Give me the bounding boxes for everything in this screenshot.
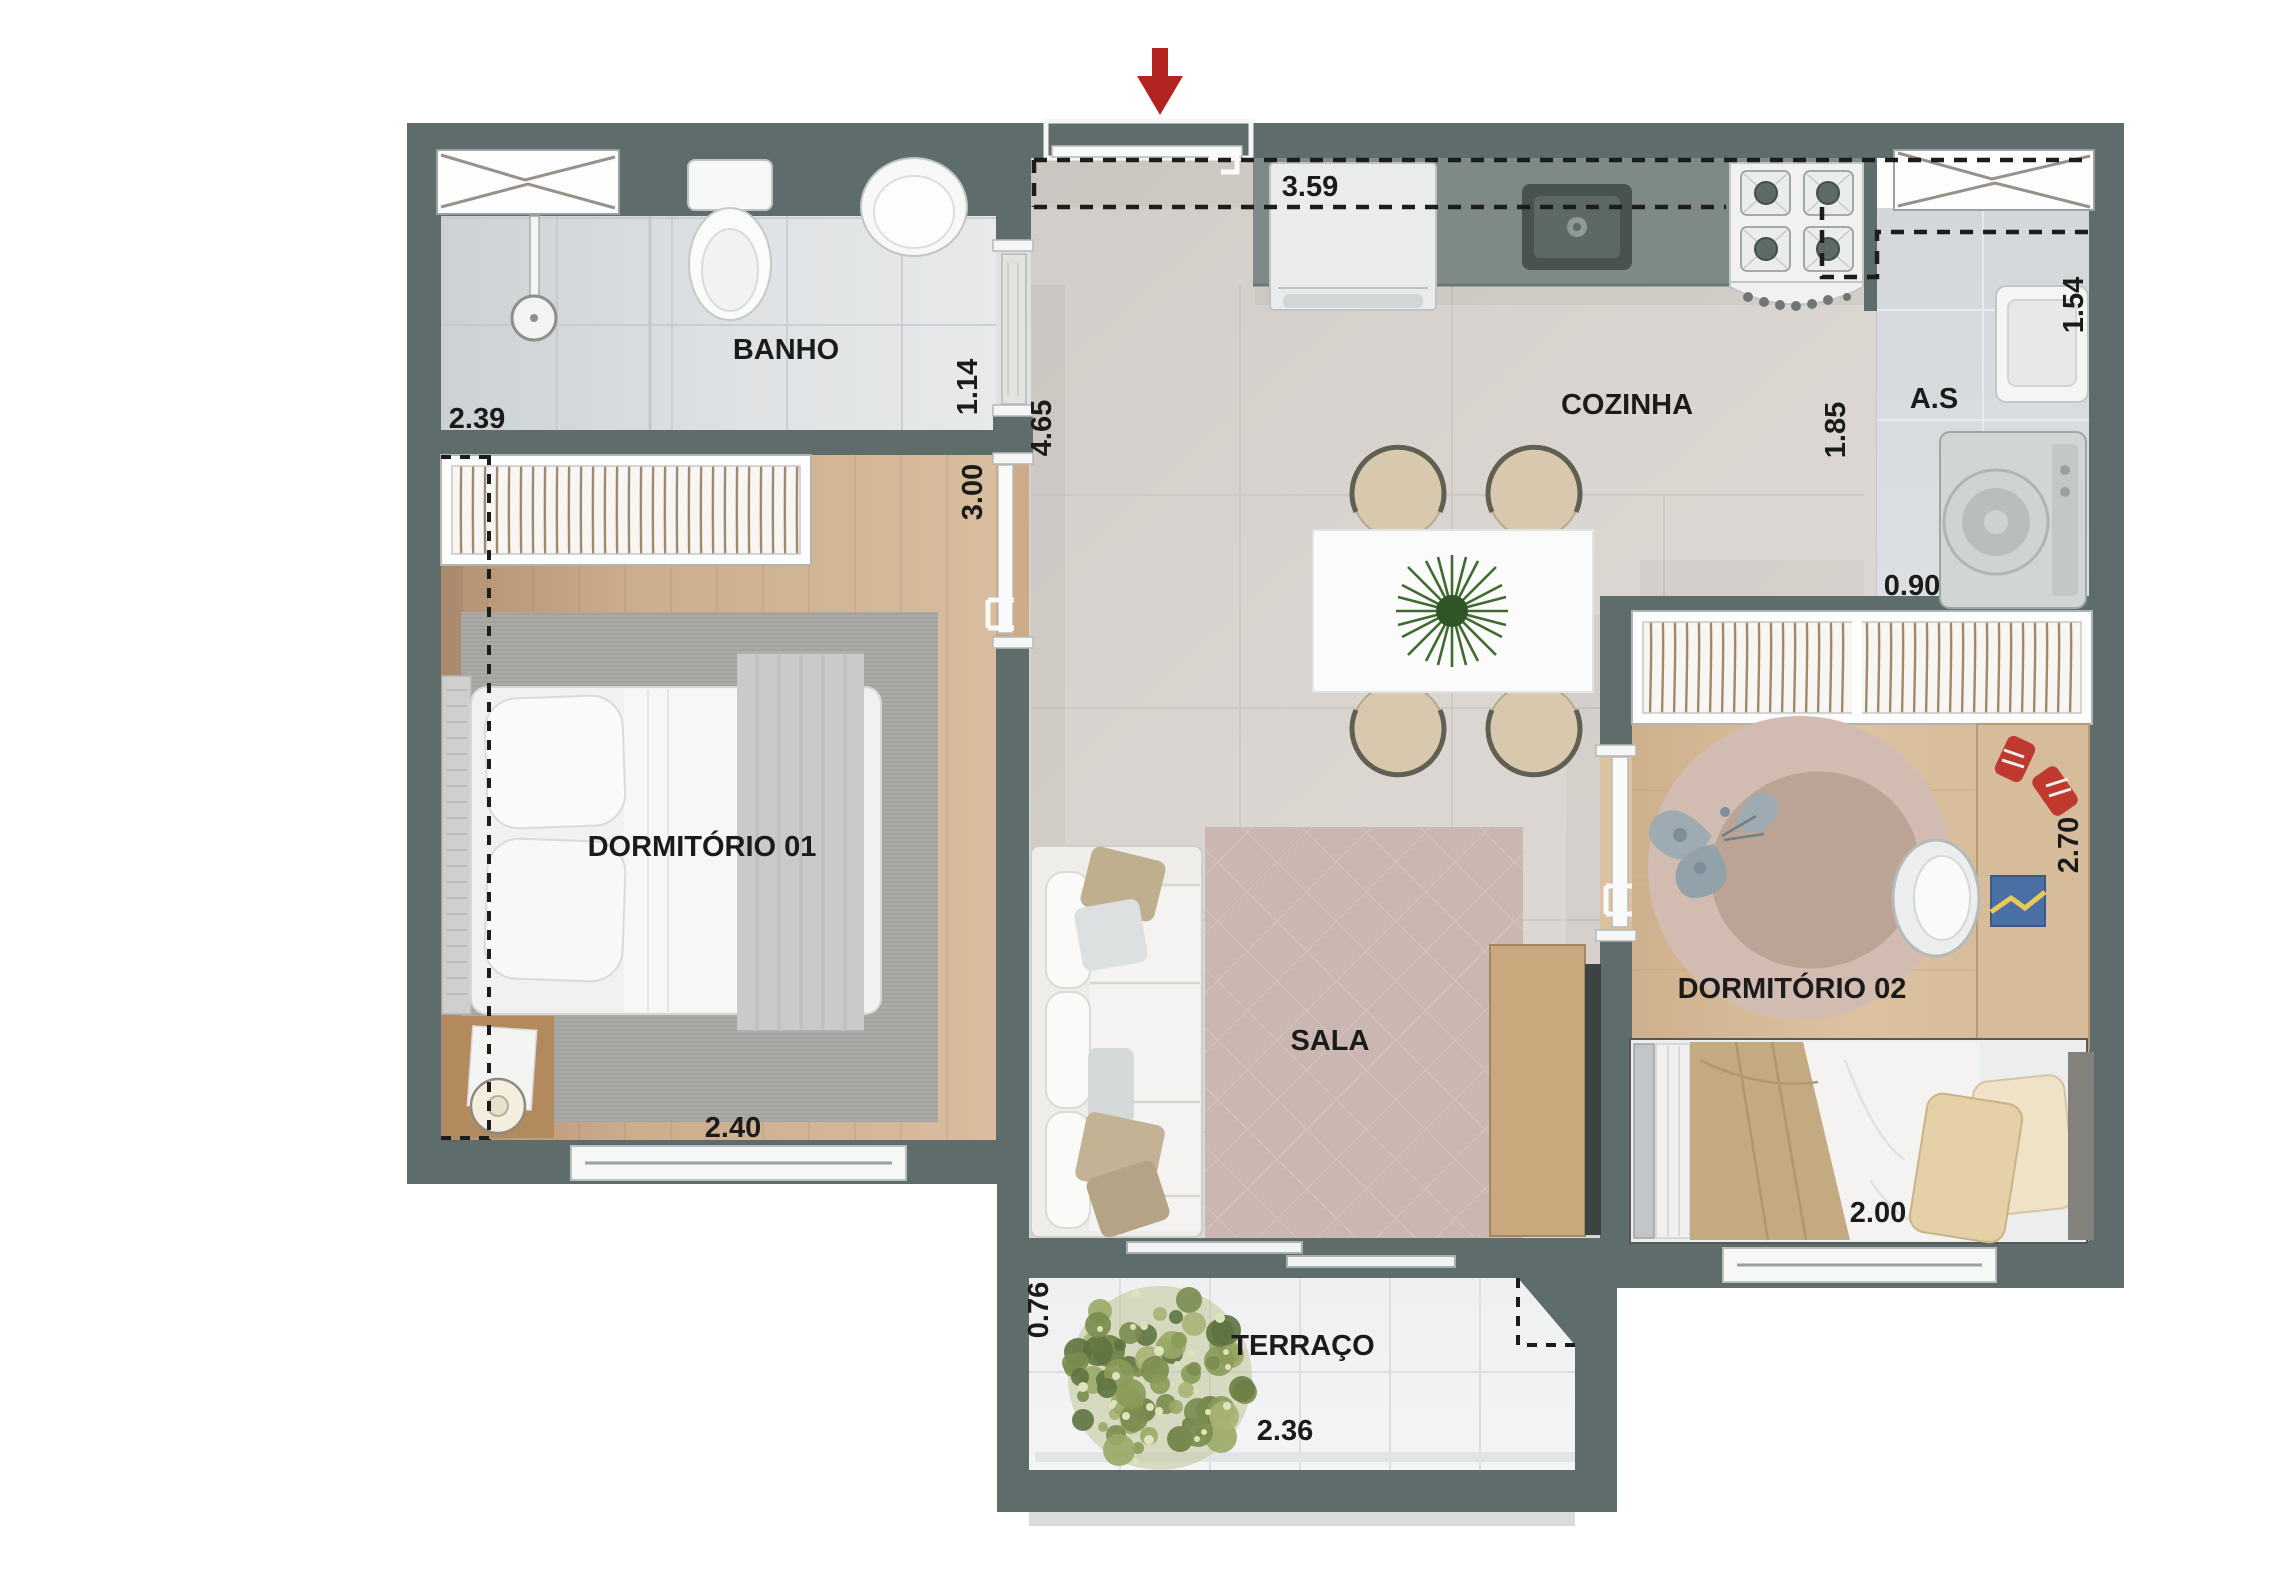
svg-text:DORMITÓRIO 01: DORMITÓRIO 01 <box>588 829 817 863</box>
svg-text:COZINHA: COZINHA <box>1561 389 1693 421</box>
svg-text:0.76: 0.76 <box>1023 1282 1055 1338</box>
svg-text:TERRAÇO: TERRAÇO <box>1231 1330 1374 1362</box>
svg-text:2.70: 2.70 <box>2053 817 2085 873</box>
svg-text:3.59: 3.59 <box>1282 171 1338 203</box>
svg-text:2.36: 2.36 <box>1257 1415 1313 1447</box>
svg-text:2.39: 2.39 <box>449 403 505 435</box>
svg-text:3.00: 3.00 <box>957 464 989 520</box>
svg-text:1.54: 1.54 <box>2058 277 2090 333</box>
svg-text:0.90: 0.90 <box>1884 570 1940 602</box>
svg-text:4.65: 4.65 <box>1026 400 1058 456</box>
svg-text:SALA: SALA <box>1291 1025 1370 1057</box>
svg-text:2.40: 2.40 <box>705 1112 761 1144</box>
svg-text:1.14: 1.14 <box>952 359 984 415</box>
svg-text:BANHO: BANHO <box>733 334 839 366</box>
svg-text:1.85: 1.85 <box>1820 402 1852 458</box>
svg-text:A.S: A.S <box>1910 383 1958 415</box>
svg-text:DORMITÓRIO 02: DORMITÓRIO 02 <box>1678 971 1907 1005</box>
svg-text:2.00: 2.00 <box>1850 1197 1906 1229</box>
